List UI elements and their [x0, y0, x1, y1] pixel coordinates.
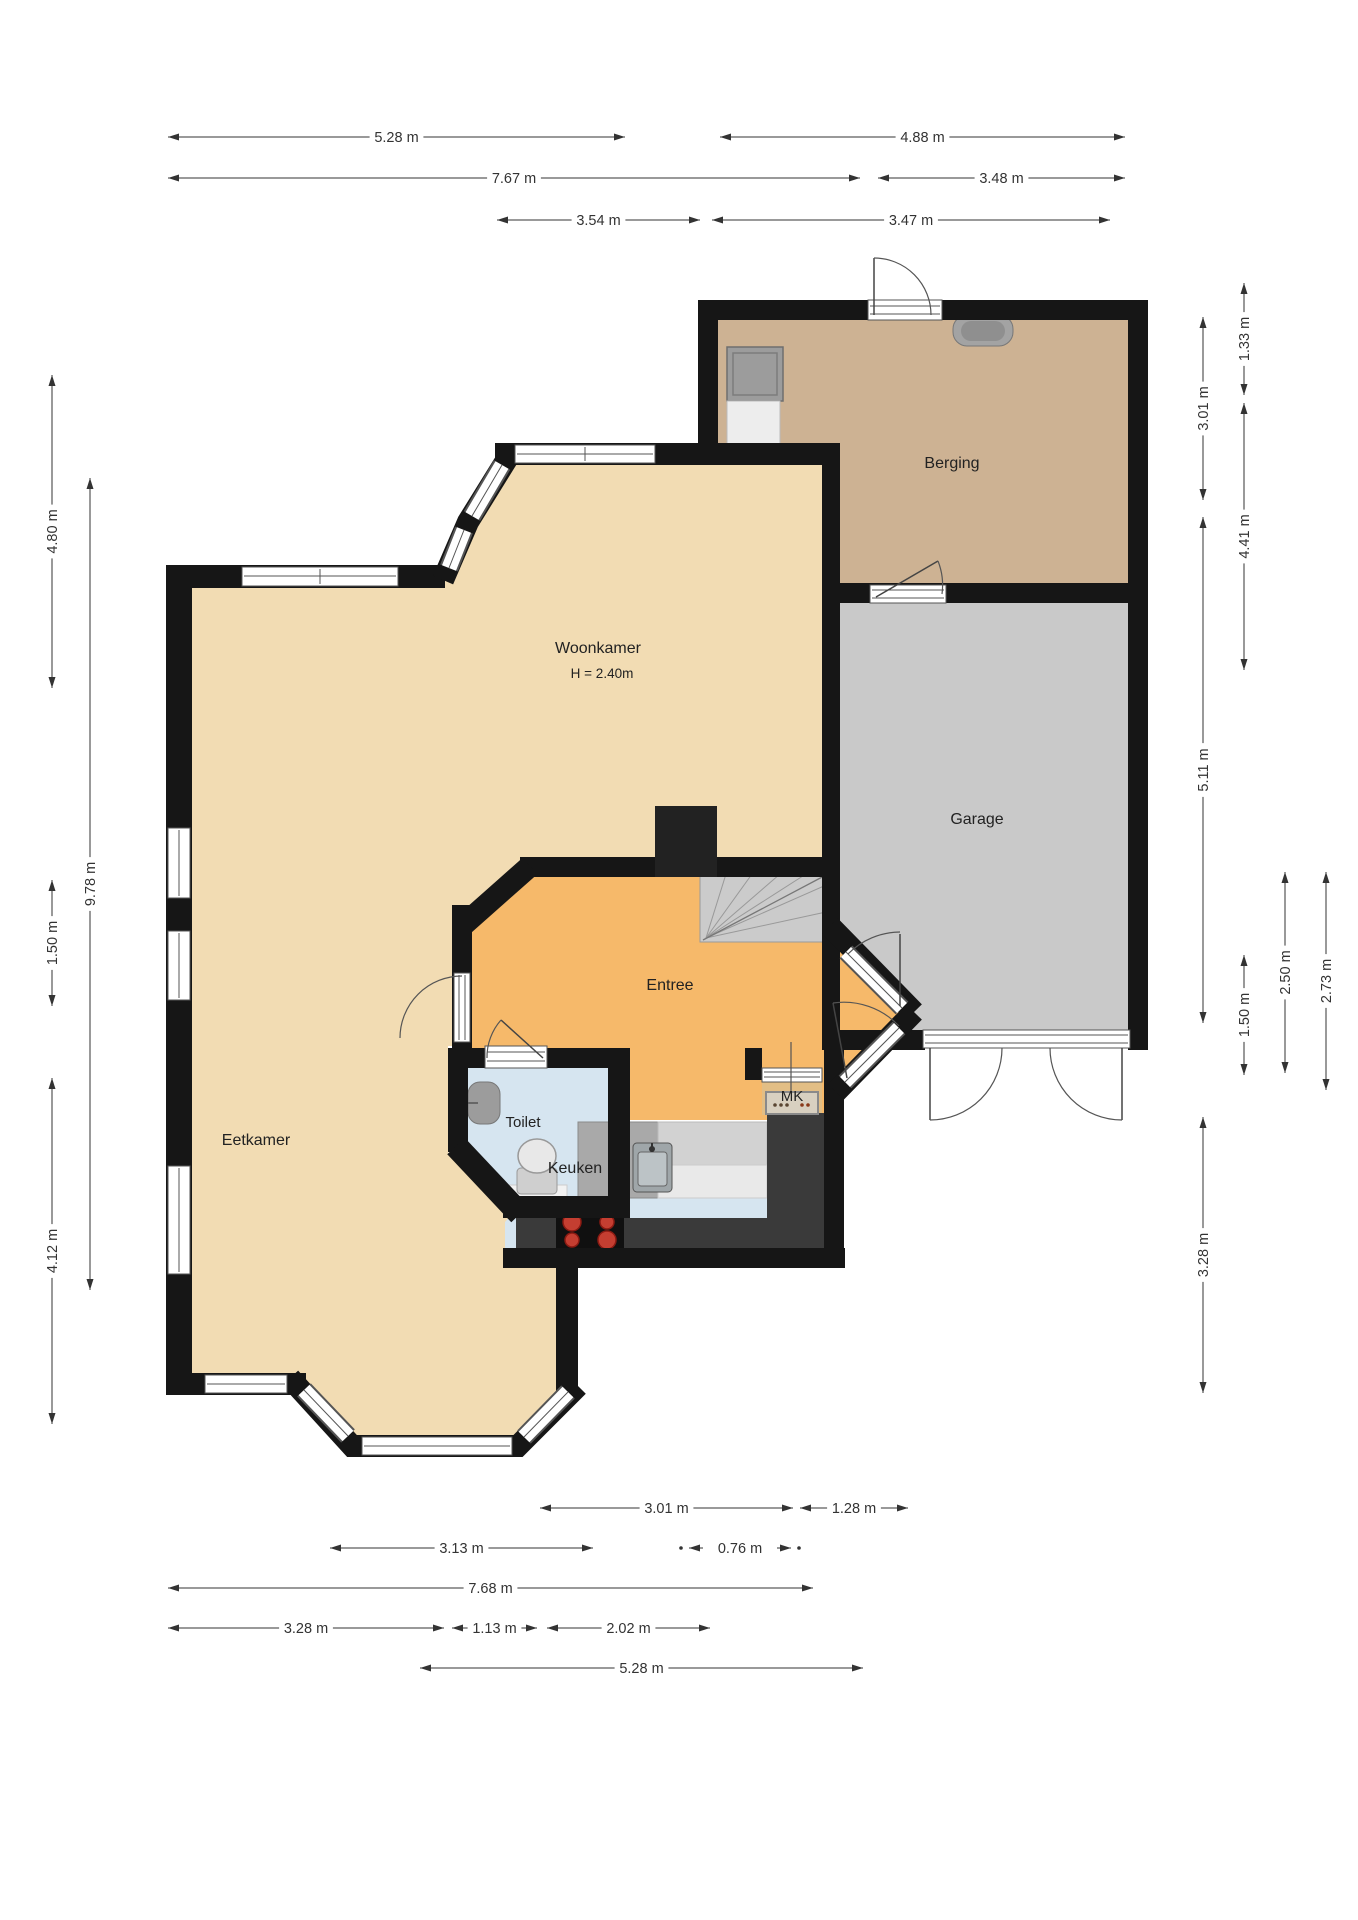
wall-kitchen-bottom: [503, 1248, 845, 1268]
svg-text:4.12 m: 4.12 m: [45, 1229, 61, 1273]
dimension: 7.68 m: [168, 1579, 813, 1597]
window-left-1: [168, 828, 190, 898]
svg-text:2.50 m: 2.50 m: [1278, 950, 1294, 994]
svg-text:7.67 m: 7.67 m: [492, 171, 536, 187]
svg-text:1.28 m: 1.28 m: [832, 1501, 876, 1517]
window-bottomleft: [205, 1375, 287, 1393]
wall-berging-left: [698, 300, 718, 465]
svg-text:1.13 m: 1.13 m: [472, 1621, 516, 1637]
dimension: 3.28 m: [168, 1619, 444, 1637]
wall-toilet-bottom: [503, 1196, 630, 1218]
svg-text:3.13 m: 3.13 m: [439, 1541, 483, 1557]
dimension: 1.28 m: [800, 1499, 908, 1517]
floor-plan: Woonkamer H = 2.40m Eetkamer Entree Toil…: [0, 0, 1358, 1920]
label-toilet: Toilet: [505, 1114, 541, 1131]
wall-right: [1128, 300, 1148, 1050]
dimension: 3.01 m: [540, 1499, 793, 1517]
window-topleft-horizontal: [242, 567, 398, 586]
svg-text:4.41 m: 4.41 m: [1237, 514, 1253, 558]
dimension: 9.78 m: [81, 478, 99, 1290]
svg-text:1.33 m: 1.33 m: [1237, 317, 1253, 361]
dimension: 5.28 m: [420, 1659, 863, 1677]
dimension: 2.50 m: [1276, 872, 1294, 1073]
label-woonkamer-height: H = 2.40m: [571, 666, 634, 681]
dimension: 7.67 m: [168, 169, 860, 187]
counter-light-icon: [658, 1122, 767, 1165]
dimension: 1.50 m: [1235, 955, 1253, 1075]
dimension: 3.47 m: [712, 211, 1110, 229]
floor-plan-page: Woonkamer H = 2.40m Eetkamer Entree Toil…: [0, 0, 1358, 1920]
svg-text:3.54 m: 3.54 m: [576, 213, 620, 229]
dimension: 4.80 m: [43, 375, 61, 688]
dimension: 1.33 m: [1235, 283, 1253, 395]
window-bay-bottom: [362, 1437, 512, 1455]
svg-text:5.28 m: 5.28 m: [619, 1661, 663, 1677]
label-entree: Entree: [646, 977, 693, 994]
wall-toilet-right: [608, 1048, 630, 1218]
svg-text:4.88 m: 4.88 m: [900, 130, 944, 146]
dimension: 1.50 m: [43, 880, 61, 1006]
svg-text:0.76 m: 0.76 m: [718, 1541, 762, 1557]
dimension: 3.48 m: [878, 169, 1125, 187]
dimension: 4.41 m: [1235, 403, 1253, 670]
label-keuken: Keuken: [548, 1160, 602, 1177]
stairs: [700, 872, 828, 942]
dimension: 3.54 m: [497, 211, 700, 229]
svg-text:3.01 m: 3.01 m: [1196, 386, 1212, 430]
cabinet-icon: [727, 401, 780, 448]
svg-text:1.50 m: 1.50 m: [45, 921, 61, 965]
dimension: 4.88 m: [720, 128, 1125, 146]
svg-text:5.11 m: 5.11 m: [1196, 748, 1212, 791]
svg-text:3.47 m: 3.47 m: [889, 213, 933, 229]
counter-light2-icon: [658, 1165, 767, 1198]
svg-text:3.28 m: 3.28 m: [284, 1621, 328, 1637]
label-eetkamer: Eetkamer: [222, 1132, 291, 1149]
door-garage-double: [923, 1030, 1130, 1120]
dimension: 2.02 m: [547, 1619, 710, 1637]
label-berging: Berging: [924, 455, 979, 472]
svg-text:1.50 m: 1.50 m: [1237, 993, 1253, 1037]
svg-text:3.01 m: 3.01 m: [644, 1501, 688, 1517]
label-meterkast: MK: [781, 1088, 804, 1105]
svg-text:2.02 m: 2.02 m: [606, 1621, 650, 1637]
svg-text:9.78 m: 9.78 m: [83, 862, 99, 906]
chimney-block: [655, 806, 717, 877]
dimension: 0.76 m: [679, 1541, 801, 1557]
dimension: 2.73 m: [1317, 872, 1335, 1090]
svg-text:3.28 m: 3.28 m: [1196, 1233, 1212, 1277]
wall-mk-left: [745, 1048, 762, 1080]
wall-eetkamer-right: [556, 1262, 578, 1396]
svg-text:4.80 m: 4.80 m: [45, 509, 61, 553]
svg-text:3.48 m: 3.48 m: [979, 171, 1023, 187]
kitchen-sink-icon: [633, 1143, 672, 1192]
svg-text:5.28 m: 5.28 m: [374, 130, 418, 146]
wash-basin-icon: [466, 1082, 500, 1124]
door-berging-exterior: [868, 258, 942, 320]
dimension: 4.12 m: [43, 1078, 61, 1424]
dimension: 3.13 m: [330, 1539, 593, 1557]
dimension: 5.11 m: [1194, 517, 1212, 1023]
window-left-3: [168, 1166, 190, 1274]
dimension: 3.28 m: [1194, 1117, 1212, 1393]
window-woonkamer-top: [515, 445, 655, 463]
svg-text:7.68 m: 7.68 m: [468, 1581, 512, 1597]
wall-garage-left: [822, 443, 840, 1050]
washing-machine-icon: [727, 347, 783, 401]
floors: [192, 318, 1128, 1448]
window-left-2: [168, 931, 190, 1000]
label-woonkamer: Woonkamer: [555, 640, 642, 657]
dimension: 5.28 m: [168, 128, 625, 146]
dimension: 3.01 m: [1194, 317, 1212, 500]
svg-text:2.73 m: 2.73 m: [1319, 959, 1335, 1003]
dimension: 1.13 m: [452, 1619, 537, 1637]
label-garage: Garage: [950, 811, 1003, 828]
